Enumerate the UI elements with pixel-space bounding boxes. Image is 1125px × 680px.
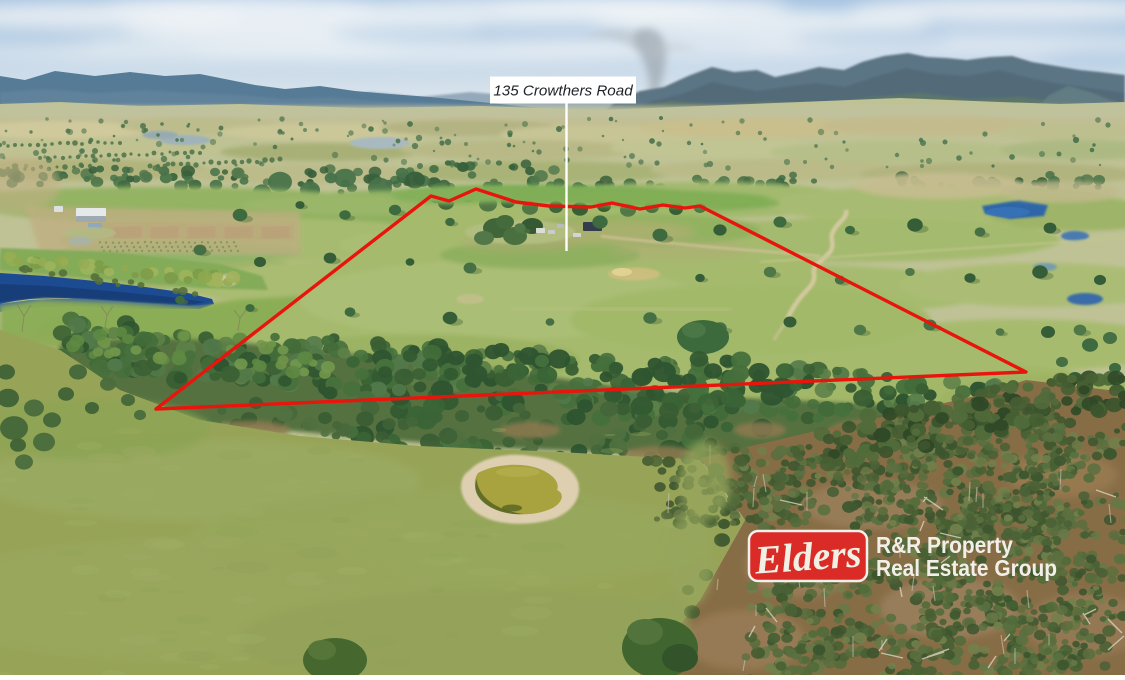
svg-text:135 Crowthers Road: 135 Crowthers Road [493,83,633,100]
svg-text:Elders: Elders [752,530,863,582]
svg-text:Real Estate Group: Real Estate Group [876,555,1057,581]
